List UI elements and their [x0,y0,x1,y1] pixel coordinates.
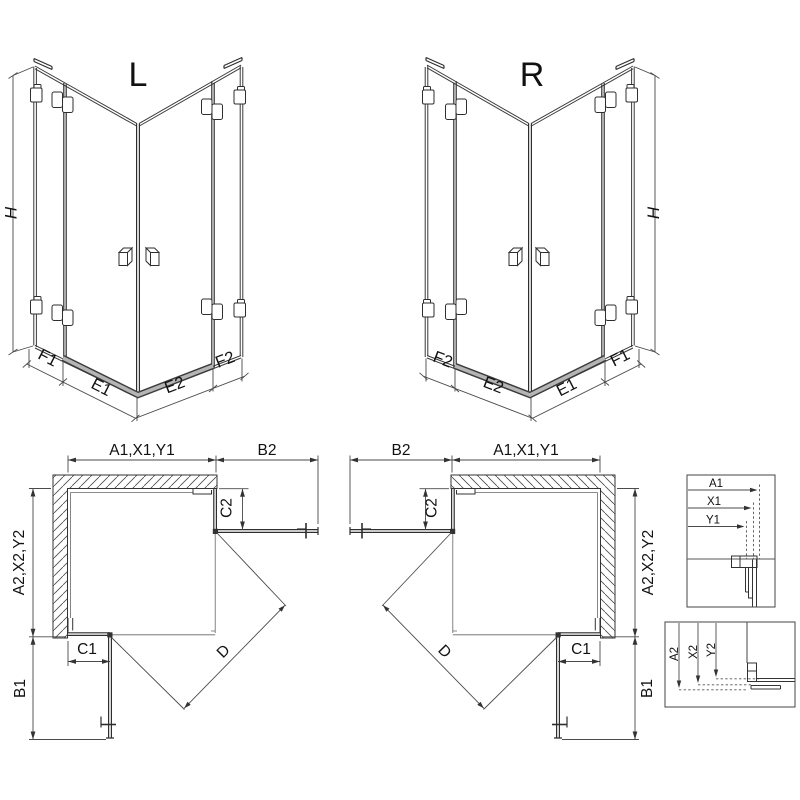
iso-view-left [9,58,249,422]
dim-label-b1-plan-right: B1 [639,679,656,698]
plan-view-left [29,456,318,740]
detail-label-y1: Y1 [706,515,720,527]
view-title-right: R [520,56,545,94]
plan-view-right [350,456,639,740]
wall-profile-section-top [732,556,758,607]
dim-label-c1-plan-left: C1 [77,641,97,658]
dim-label-b2-plan-right: B2 [392,442,411,459]
detail-label-x1: X1 [707,496,721,508]
detail-box-widths [687,475,775,607]
labels-detail-boxes: A1 X1 Y1 A2 X2 Y2 [669,478,723,661]
dim-label-f2-right: F2 [431,348,455,372]
dim-label-b1-plan-left: B1 [12,679,29,698]
dim-label-c2-plan-right: C2 [424,498,441,518]
shower-enclosure-technical-drawing: L H F1 E1 E2 F2 R H F2 E2 E1 F1 A1,X1,Y1… [0,0,800,800]
detail-label-x2: X2 [688,645,700,659]
dim-label-height-left: H [2,206,21,219]
detail-label-a1: A1 [709,478,723,490]
dim-label-height-right: H [644,206,663,219]
dim-label-a2-plan-left: A2,X2,Y2 [11,530,28,596]
dim-label-d-plan-right: D [434,642,454,662]
dim-label-f2-left: F2 [213,348,237,372]
dim-label-a1-plan-left: A1,X1,Y1 [109,442,175,459]
dim-label-c2-plan-left: C2 [219,498,236,518]
dim-label-b2-plan-left: B2 [258,442,277,459]
view-title-left: L [129,56,148,94]
wall-profile-section-side [748,663,795,689]
dim-label-a1-plan-right: A1,X1,Y1 [493,442,559,459]
dim-label-a2-plan-right: A2,X2,Y2 [640,530,657,596]
iso-view-right [420,58,660,422]
detail-label-y2: Y2 [706,643,718,657]
dim-label-d-plan-left: D [214,642,234,662]
detail-box-depths [665,622,795,707]
detail-label-a2: A2 [669,647,681,661]
dim-label-c1-plan-right: C1 [571,641,591,658]
